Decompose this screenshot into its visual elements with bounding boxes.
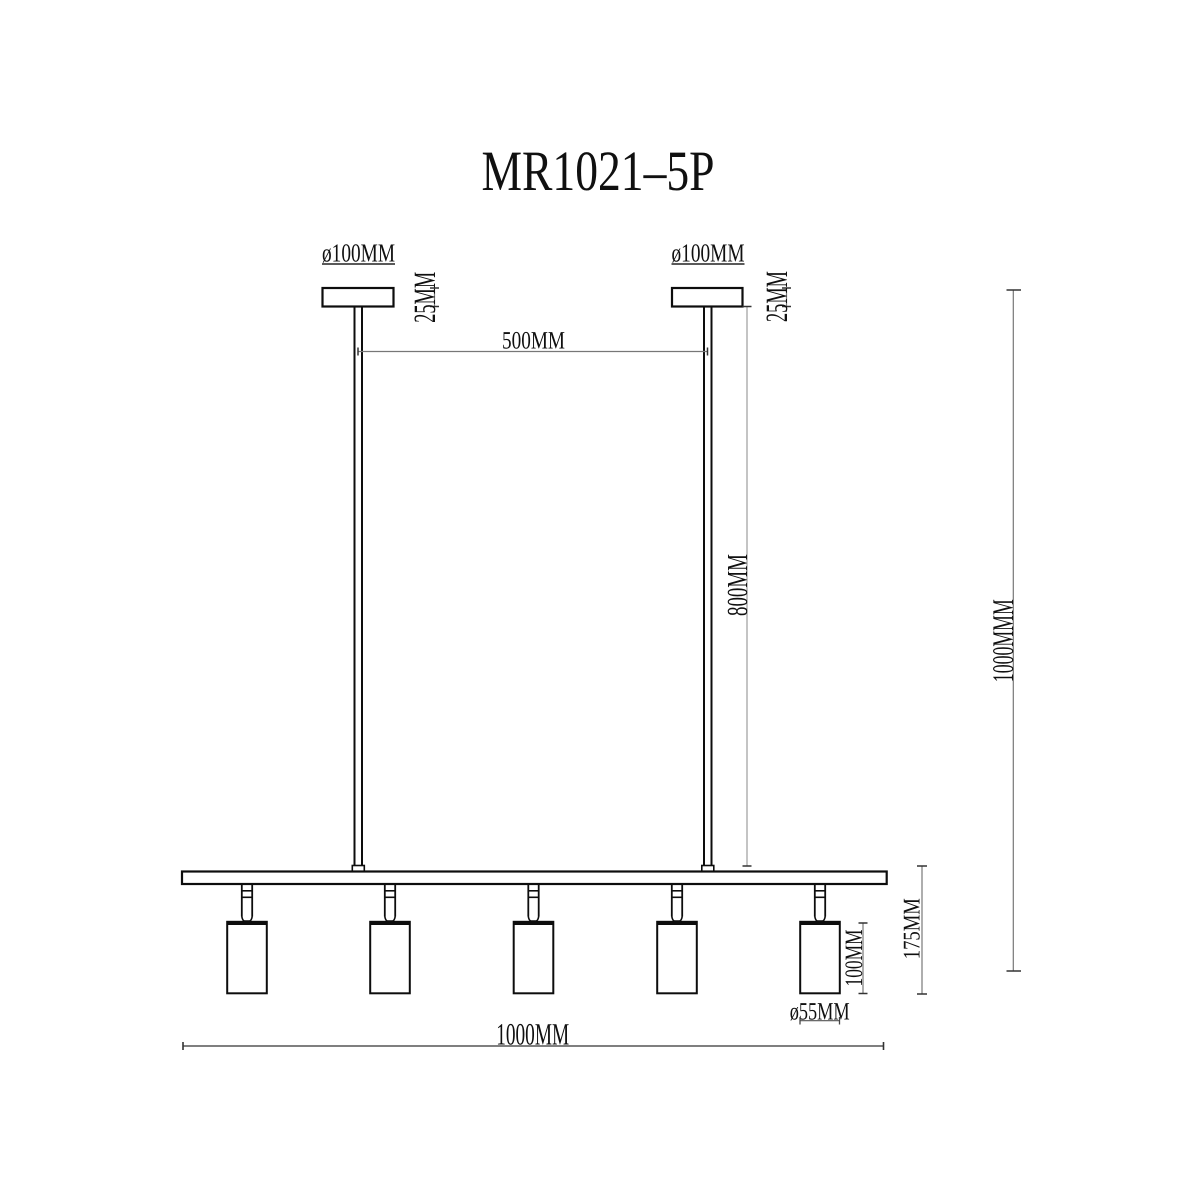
svg-text:ø55MM: ø55MM: [790, 999, 850, 1026]
svg-text:ø100MM: ø100MM: [322, 239, 395, 268]
svg-text:MR1021–5P: MR1021–5P: [482, 140, 715, 203]
svg-text:100MM: 100MM: [841, 930, 868, 987]
svg-text:800MM: 800MM: [722, 554, 754, 616]
svg-text:ø100MM: ø100MM: [672, 239, 745, 268]
svg-text:1000MM: 1000MM: [496, 1017, 569, 1052]
svg-text:25MM: 25MM: [759, 271, 794, 322]
svg-text:500MM: 500MM: [502, 328, 565, 355]
svg-text:25MM: 25MM: [407, 272, 442, 323]
svg-text:175MM: 175MM: [900, 898, 926, 959]
svg-text:1000MMM: 1000MMM: [987, 599, 1020, 682]
